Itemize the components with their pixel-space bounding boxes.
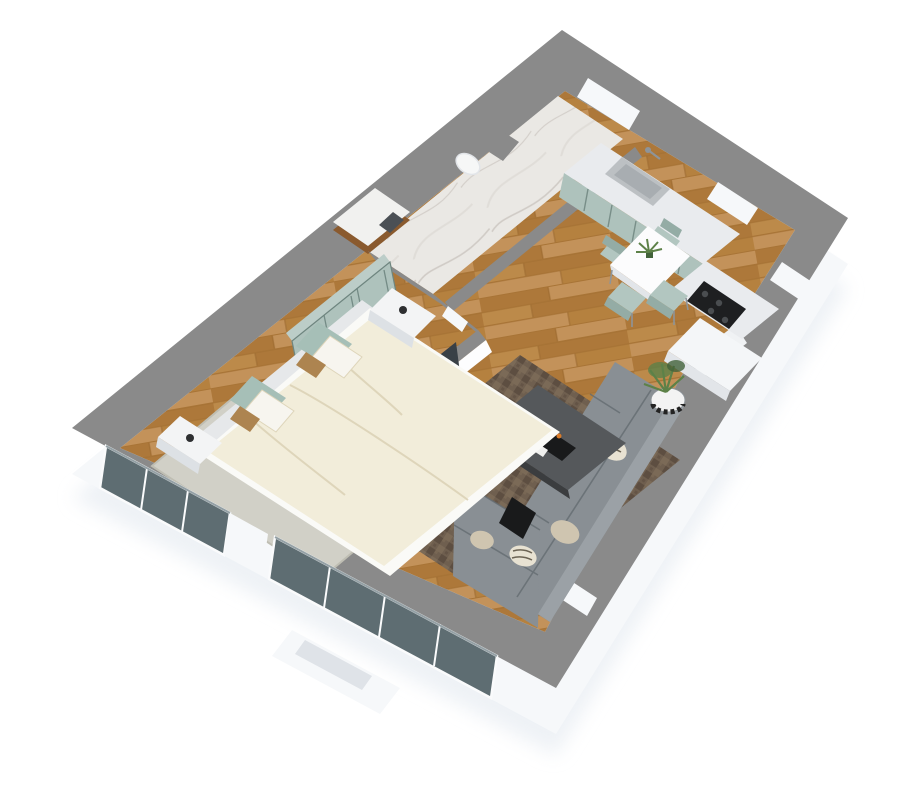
burner: [702, 291, 708, 297]
cup: [399, 306, 407, 314]
burner: [722, 317, 728, 323]
burner: [716, 300, 722, 306]
cup: [186, 434, 194, 442]
burner: [708, 308, 714, 314]
apartment-3d-floorplan: [0, 0, 900, 794]
floorplan-stage: [0, 0, 900, 794]
plant-foliage: [667, 360, 685, 372]
